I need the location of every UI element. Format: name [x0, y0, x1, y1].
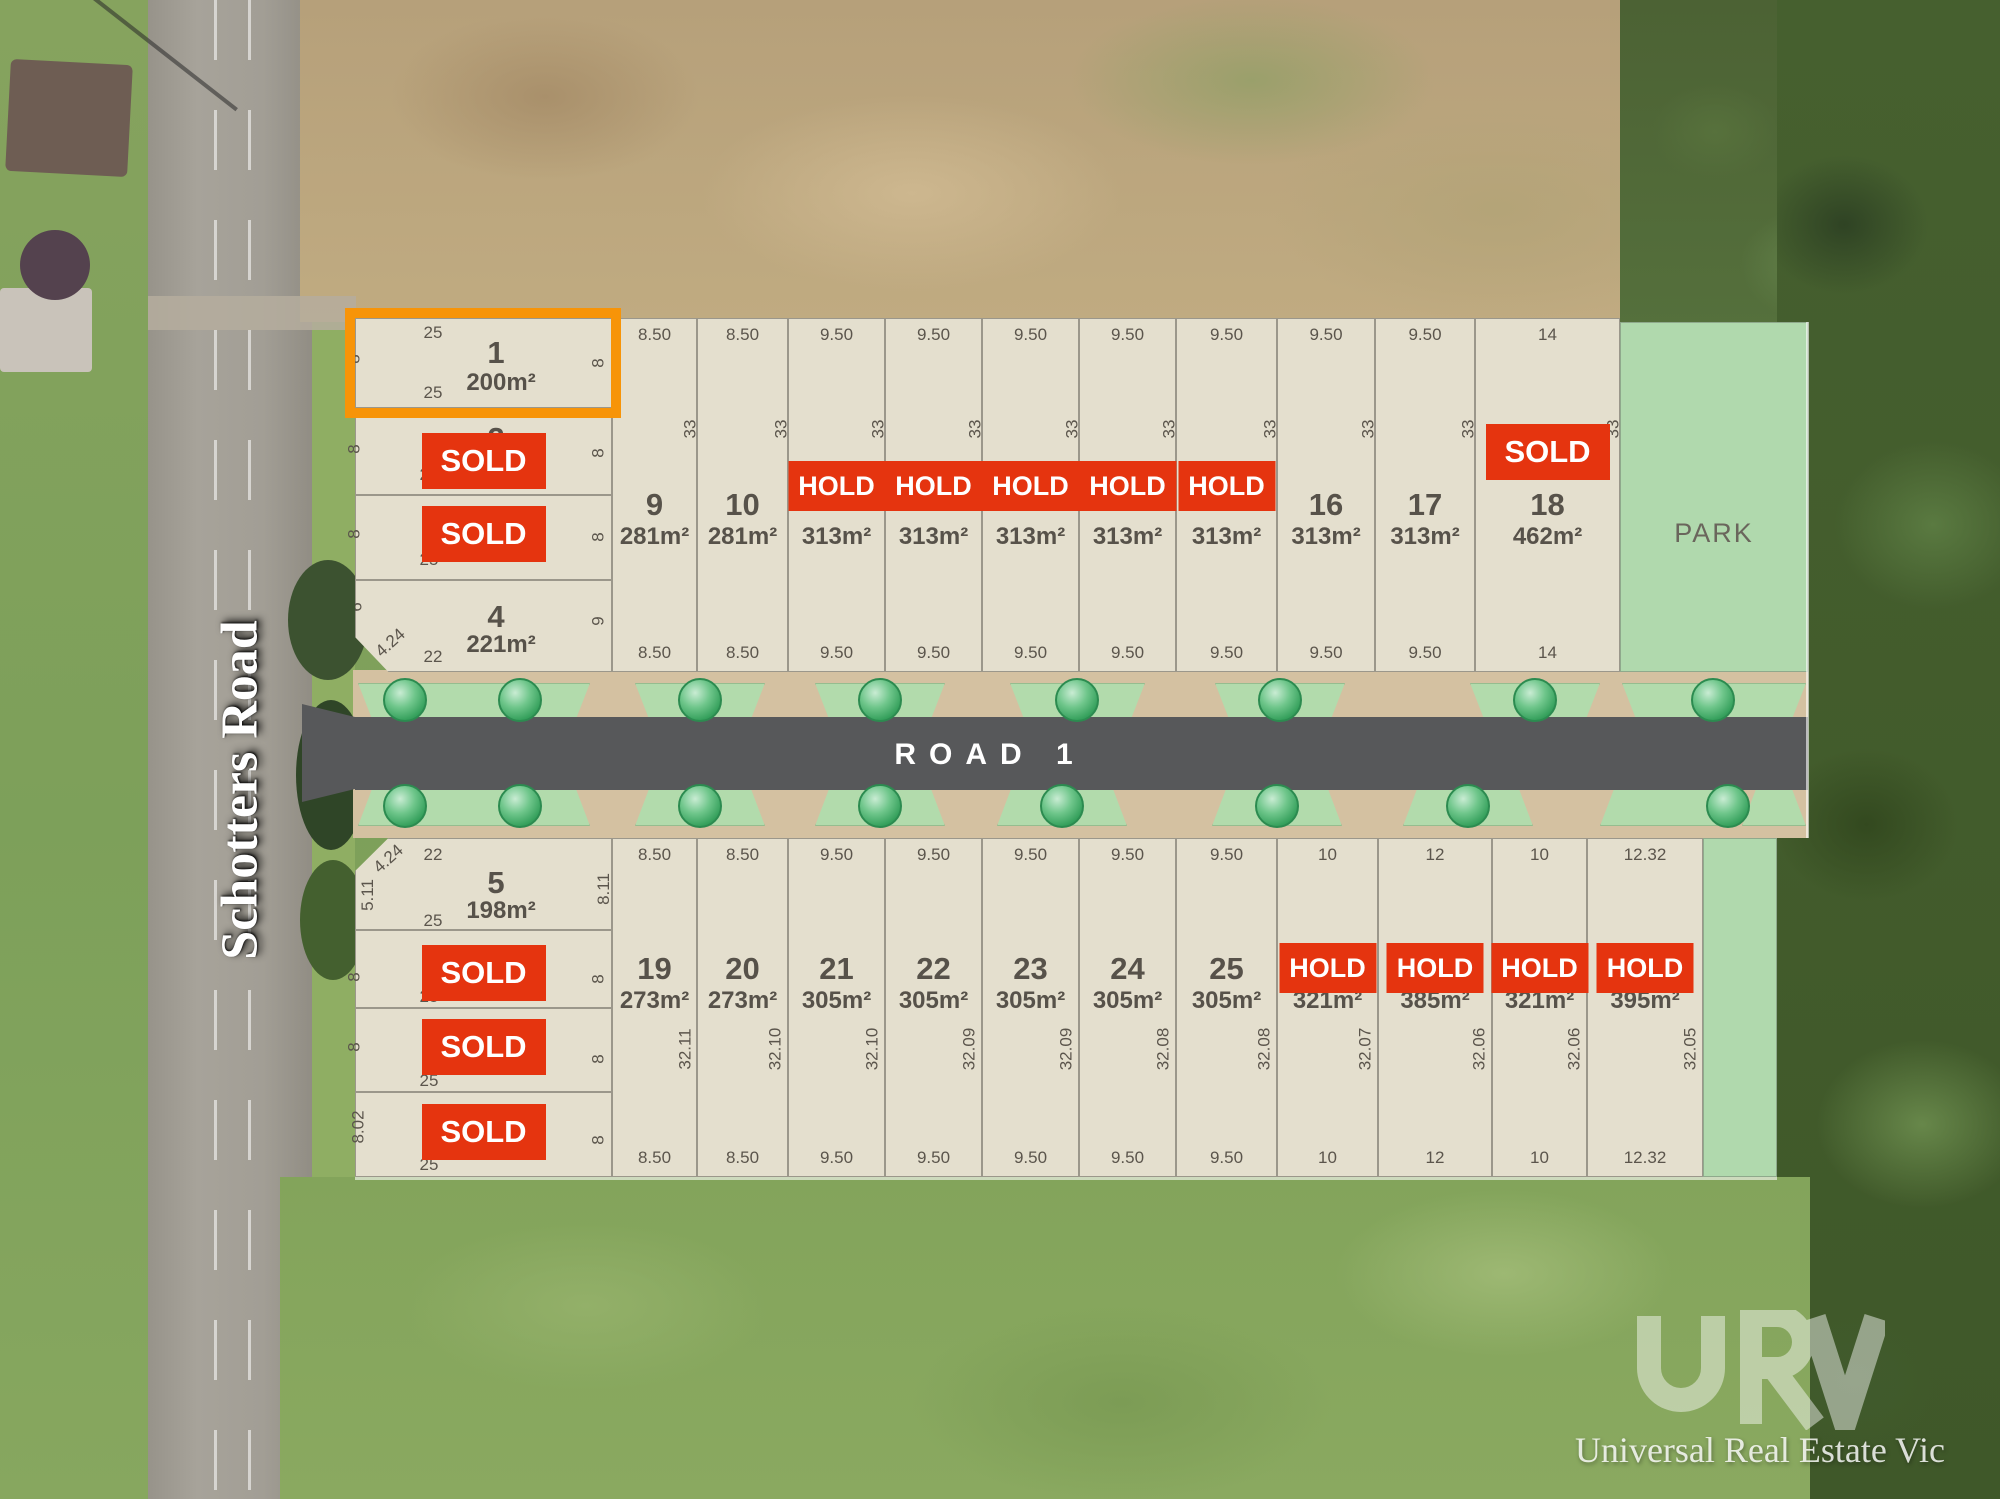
sold-badge: SOLD	[422, 506, 546, 562]
street-tree-icon	[383, 784, 427, 828]
street-tree-icon	[1255, 784, 1299, 828]
subdivision-masterplan: ROAD 1PARK8.508.50339281m²8.508.50331028…	[0, 0, 2000, 1499]
lot-top-dimension: 10	[1530, 845, 1549, 865]
lot-9: 8.508.50339281m²	[612, 318, 697, 672]
lot-top-dimension: 9.50	[1309, 325, 1342, 345]
lot-top-dimension: 9.50	[1210, 325, 1243, 345]
lot-right-dimension: 8	[589, 532, 609, 541]
lot-top-dimension: 8.50	[726, 845, 759, 865]
hold-badge: HOLD	[982, 461, 1079, 511]
street-tree-icon	[678, 784, 722, 828]
featured-lot-highlight[interactable]	[345, 308, 621, 418]
lot-bottom-dimension: 10	[1318, 1148, 1337, 1168]
lot-bottom-dimension: 22	[424, 647, 443, 667]
lot-2: 22588SOLD	[355, 408, 612, 495]
lot-bottom-dimension: 9.50	[1014, 643, 1047, 663]
lot-bottom-dimension: 9.50	[1408, 643, 1441, 663]
sold-badge: SOLD	[1486, 424, 1610, 480]
lot-number: 4	[487, 599, 504, 635]
lot-left-dimension: 8	[345, 972, 365, 981]
lot-top-dimension: 9.50	[1111, 325, 1144, 345]
hold-badge: HOLD	[1387, 943, 1484, 993]
street-tree-icon	[1513, 678, 1557, 722]
lot-bottom-dimension: 9.50	[820, 1148, 853, 1168]
street-tree-icon	[1040, 784, 1084, 828]
lot-number: 9	[613, 487, 696, 523]
lot-diag-dimension: 4.24	[370, 840, 408, 877]
sold-badge: SOLD	[422, 1104, 546, 1160]
agency-watermark: Universal Real Estate Vic	[1575, 1310, 1945, 1471]
urv-logo-icon	[1635, 1310, 1885, 1430]
lot-number: 20	[698, 951, 787, 987]
hold-badge: HOLD	[1491, 943, 1588, 993]
sold-badge: SOLD	[422, 433, 546, 489]
lot-north-6: 9.509.5033313m²HOLD	[1176, 318, 1277, 672]
lot-north-5: 9.509.5033313m²HOLD	[1079, 318, 1176, 672]
lot-4: 4221m²22694.24	[355, 580, 612, 672]
estate-plan-layer: ROAD 1PARK8.508.50339281m²8.508.50331028…	[0, 0, 2000, 1499]
hold-badge: HOLD	[1178, 461, 1275, 511]
lot-bottom-dimension: 9.50	[917, 1148, 950, 1168]
lot-top-dimension: 22	[424, 845, 443, 865]
lot-right-dimension: 8	[589, 1135, 609, 1144]
lot-21: 9.509.5032.1021305m²	[788, 838, 885, 1177]
lot-area: 305m²	[1177, 987, 1276, 1015]
lot-side-dimension: 32.07	[1356, 1028, 1376, 1071]
lot-west: 2588SOLD	[355, 1008, 612, 1092]
lot-bottom-dimension: 8.50	[638, 1148, 671, 1168]
lot-side-dimension: 32.05	[1681, 1028, 1701, 1071]
lot-number: 16	[1278, 487, 1374, 523]
lot-bottom-dimension: 25	[424, 911, 443, 931]
lot-area: 305m²	[983, 987, 1078, 1015]
lot-left-dimension: 6	[347, 602, 367, 611]
street-tree-icon	[1446, 784, 1490, 828]
lot-16: 9.509.503316313m²	[1277, 318, 1375, 672]
lot-number: 21	[789, 951, 884, 987]
lot-west: 2588SOLD	[355, 495, 612, 580]
lot-top-dimension: 9.50	[1210, 845, 1243, 865]
lot-right-dimension: 8	[589, 974, 609, 983]
lot-north-4: 9.509.5033313m²HOLD	[982, 318, 1079, 672]
lot-bottom-dimension: 8.50	[726, 1148, 759, 1168]
lot-24: 9.509.5032.0824305m²	[1079, 838, 1176, 1177]
lot-top-dimension: 9.50	[820, 845, 853, 865]
lot-bottom-dimension: 12	[1426, 1148, 1445, 1168]
lot-top-dimension: 9.50	[1111, 845, 1144, 865]
lot-south-7: 101032.07321m²HOLD	[1277, 838, 1378, 1177]
lot-area: 313m²	[983, 523, 1078, 551]
lot-10: 8.508.503310281m²	[697, 318, 788, 672]
street-tree-icon	[1258, 678, 1302, 722]
agency-name: Universal Real Estate Vic	[1575, 1429, 1945, 1471]
lot-side-dimension: 32.10	[766, 1028, 786, 1071]
street-tree-icon	[1706, 784, 1750, 828]
lot-area: 313m²	[886, 523, 981, 551]
lot-side-dimension: 32.10	[863, 1028, 883, 1071]
park-reserve: PARK	[1620, 322, 1808, 672]
lot-area: 198m²	[466, 897, 535, 925]
lot-bottom-dimension: 9.50	[1210, 1148, 1243, 1168]
lot-number: 17	[1376, 487, 1474, 523]
park-label: PARK	[1621, 518, 1807, 549]
lot-side-dimension: 32.11	[675, 1028, 695, 1069]
lot-area: 305m²	[789, 987, 884, 1015]
lot-right-dimension: 8	[589, 1054, 609, 1063]
street-tree-icon	[678, 678, 722, 722]
street-tree-icon	[498, 784, 542, 828]
estate-boundary-line	[1806, 322, 1809, 838]
lot-bottom-dimension: 9.50	[1210, 643, 1243, 663]
lot-area: 313m²	[789, 523, 884, 551]
lot-top-dimension: 8.50	[726, 325, 759, 345]
lot-top-dimension: 9.50	[917, 845, 950, 865]
lot-bottom-dimension: 9.50	[820, 643, 853, 663]
street-tree-icon	[858, 784, 902, 828]
lot-bottom-dimension: 9.50	[1111, 643, 1144, 663]
lot-area: 462m²	[1476, 523, 1619, 551]
hold-badge: HOLD	[885, 461, 982, 511]
lot-left-dimension: 5.11	[358, 879, 378, 911]
green-reserve-strip	[1703, 838, 1777, 1177]
lot-right-dimension: 8	[589, 448, 609, 457]
lot-side-dimension: 32.06	[1470, 1028, 1490, 1071]
lot-left-dimension: 8	[345, 444, 365, 453]
street-tree-icon	[383, 678, 427, 722]
lot-23: 9.509.5032.0923305m²	[982, 838, 1079, 1177]
lot-north-3: 9.509.5033313m²HOLD	[885, 318, 982, 672]
lot-bottom-dimension: 9.50	[1309, 643, 1342, 663]
lot-top-dimension: 9.50	[1014, 325, 1047, 345]
lot-right-dimension: 8.11	[594, 873, 614, 905]
lot-17: 9.509.503317313m²	[1375, 318, 1475, 672]
street-tree-icon	[1691, 678, 1735, 722]
lot-area: 273m²	[613, 987, 696, 1015]
lot-number: 18	[1476, 487, 1619, 523]
lot-bottom-dimension: 9.50	[917, 643, 950, 663]
lot-top-dimension: 8.50	[638, 845, 671, 865]
road-1-label: ROAD 1	[894, 738, 1085, 772]
lot-area: 273m²	[698, 987, 787, 1015]
lot-bottom-dimension: 9.50	[1111, 1148, 1144, 1168]
lot-area: 313m²	[1278, 523, 1374, 551]
lot-left-dimension: 8	[345, 1042, 365, 1051]
hold-badge: HOLD	[1279, 943, 1376, 993]
lot-south-10: 12.3212.3232.05395m²HOLD	[1587, 838, 1703, 1177]
hold-badge: HOLD	[788, 461, 885, 511]
estate-boundary-line	[355, 1177, 1777, 1180]
lot-bottom-dimension: 8.50	[726, 643, 759, 663]
lot-area: 313m²	[1177, 523, 1276, 551]
lot-bottom-dimension: 14	[1538, 643, 1557, 663]
lot-side-dimension: 32.09	[1057, 1028, 1077, 1071]
lot-left-dimension: 8	[345, 529, 365, 538]
lot-5: 225198m²255.118.114.24	[355, 838, 612, 930]
lot-top-dimension: 9.50	[1014, 845, 1047, 865]
lot-number: 25	[1177, 951, 1276, 987]
lot-25: 9.509.5032.0825305m²	[1176, 838, 1277, 1177]
lot-area: 313m²	[1376, 523, 1474, 551]
lot-south-9: 101032.06321m²HOLD	[1492, 838, 1587, 1177]
lot-left-dimension: 8.02	[349, 1110, 369, 1143]
lot-number: 24	[1080, 951, 1175, 987]
lot-area: 305m²	[1080, 987, 1175, 1015]
lot-number: 23	[983, 951, 1078, 987]
lot-bottom-dimension: 12.32	[1624, 1148, 1667, 1168]
lot-top-dimension: 10	[1318, 845, 1337, 865]
lot-top-dimension: 9.50	[1408, 325, 1441, 345]
lot-20: 8.508.5032.1020273m²	[697, 838, 788, 1177]
lot-diag-dimension: 4.24	[372, 624, 410, 661]
lot-22: 9.509.5032.0922305m²	[885, 838, 982, 1177]
lot-top-dimension: 9.50	[820, 325, 853, 345]
lot-side-dimension: 32.09	[960, 1028, 980, 1071]
lot-area: 313m²	[1080, 523, 1175, 551]
lot-bottom-dimension: 9.50	[1014, 1148, 1047, 1168]
road-junction-mouth	[302, 704, 358, 802]
lot-right-dimension: 9	[589, 616, 609, 625]
street-tree-icon	[498, 678, 542, 722]
lot-top-dimension: 9.50	[917, 325, 950, 345]
lot-19: 8.508.5032.1119273m²	[612, 838, 697, 1177]
lot-number: 5	[487, 865, 504, 901]
lot-side-dimension: 32.08	[1154, 1028, 1174, 1071]
hold-badge: HOLD	[1079, 461, 1176, 511]
lot-west: 258.028SOLD	[355, 1092, 612, 1177]
lot-top-dimension: 12.32	[1624, 845, 1667, 865]
lot-south-8: 121232.06385m²HOLD	[1378, 838, 1492, 1177]
lot-top-dimension: 12	[1426, 845, 1445, 865]
lot-area: 305m²	[886, 987, 981, 1015]
lot-north-2: 9.509.5033313m²HOLD	[788, 318, 885, 672]
street-tree-icon	[858, 678, 902, 722]
lot-number: 22	[886, 951, 981, 987]
lot-side-dimension: 32.08	[1255, 1028, 1275, 1071]
lot-side-dimension: 32.06	[1565, 1028, 1585, 1071]
lot-top-dimension: 8.50	[638, 325, 671, 345]
schotters-road-label: Schotters Road	[211, 620, 270, 959]
lot-top-dimension: 14	[1538, 325, 1557, 345]
lot-18: 14143318462m²SOLD	[1475, 318, 1620, 672]
lot-number: 19	[613, 951, 696, 987]
lot-west: 2588SOLD	[355, 930, 612, 1008]
street-tree-icon	[1055, 678, 1099, 722]
lot-area: 281m²	[698, 523, 787, 551]
lot-area: 221m²	[466, 631, 535, 659]
hold-badge: HOLD	[1597, 943, 1694, 993]
lot-bottom-dimension: 10	[1530, 1148, 1549, 1168]
lot-area: 281m²	[613, 523, 696, 551]
sold-badge: SOLD	[422, 1019, 546, 1075]
lot-number: 10	[698, 487, 787, 523]
lot-bottom-dimension: 8.50	[638, 643, 671, 663]
sold-badge: SOLD	[422, 945, 546, 1001]
